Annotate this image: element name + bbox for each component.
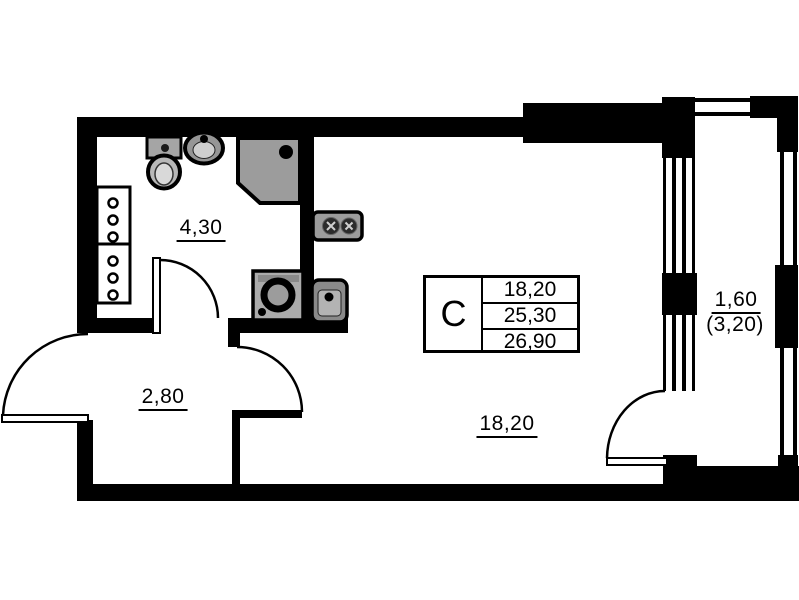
unit-legend-table: С 18,20 25,30 26,90 [423, 275, 580, 353]
unit-type-cell: С [426, 278, 483, 350]
shower [238, 138, 300, 203]
stove [313, 212, 362, 240]
unit-area-apartment: 25,30 [483, 304, 577, 330]
unit-area-living: 18,20 [483, 278, 577, 304]
hallway-area-value: 2,80 [139, 385, 188, 411]
entrance-door [2, 334, 88, 422]
kitchen-sink [312, 280, 347, 322]
balcony-door [607, 391, 667, 465]
toilet [147, 137, 181, 189]
balcony-area-label: 1,60 [712, 288, 761, 311]
bathroom-door [153, 258, 218, 333]
balcony-area-total-value: (3,20) [706, 313, 764, 336]
balcony-area-value: 1,60 [712, 288, 761, 314]
balcony-area-total-label: (3,20) [706, 313, 764, 336]
washing-machine [253, 271, 303, 320]
unit-areas: 18,20 25,30 26,90 [483, 278, 577, 350]
bathroom-sink [185, 133, 223, 164]
bathroom-area-value: 4,30 [177, 216, 226, 242]
shelving-unit [97, 187, 130, 303]
doors-and-fixtures-layer [0, 0, 799, 600]
hallway-area-label: 2,80 [139, 385, 188, 408]
floor-plan: 4,30 2,80 18,20 1,60 (3,20) С 18,20 25,3… [0, 0, 799, 600]
unit-area-total: 26,90 [483, 330, 577, 354]
hallway-room-door [237, 347, 302, 412]
main-room-area-label: 18,20 [476, 412, 537, 435]
main-room-area-value: 18,20 [476, 412, 537, 438]
bathroom-area-label: 4,30 [177, 216, 226, 239]
